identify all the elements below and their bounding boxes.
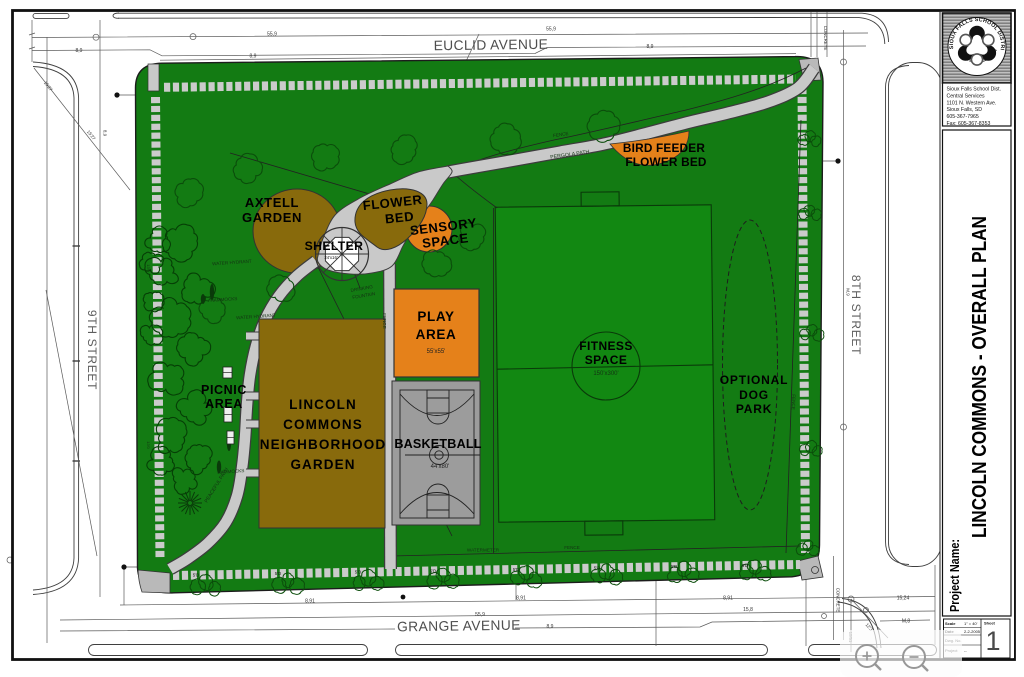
svg-text:Fax: 605-367-8353: Fax: 605-367-8353 — [947, 121, 991, 127]
svg-text:1" = 40': 1" = 40' — [964, 621, 978, 626]
svg-text:OPTIONAL: OPTIONAL — [720, 373, 788, 387]
svg-text:1: 1 — [985, 626, 1000, 656]
svg-text:5'D: 5'D — [430, 568, 437, 573]
svg-text:55,9: 55,9 — [475, 612, 485, 618]
svg-text:8TH STREET: 8TH STREET — [849, 275, 863, 355]
svg-text:8,9: 8,9 — [647, 44, 654, 50]
svg-text:13'0: 13'0 — [146, 441, 151, 449]
svg-text:FENCE: FENCE — [791, 394, 797, 410]
svg-text:44'x80': 44'x80' — [431, 464, 450, 470]
svg-text:5'D: 5'D — [671, 564, 678, 569]
svg-text:Sioux Falls School Dist.: Sioux Falls School Dist. — [947, 87, 1002, 93]
svg-text:5'D: 5'D — [193, 573, 200, 578]
svg-text:8,91: 8,91 — [723, 596, 733, 602]
svg-text:AREA: AREA — [205, 397, 243, 411]
svg-text:5'D: 5'D — [275, 571, 282, 576]
svg-text:M,8: M,8 — [902, 619, 911, 625]
svg-text:9TH STREET: 9TH STREET — [85, 310, 99, 390]
svg-text:55,9: 55,9 — [267, 32, 277, 38]
svg-text:FLOWER BED: FLOWER BED — [625, 155, 707, 169]
svg-text:CONCRETE: CONCRETE — [836, 588, 841, 613]
svg-text:BASKETBALL: BASKETBALL — [394, 437, 481, 451]
svg-text:GRANGE AVENUE: GRANGE AVENUE — [397, 618, 521, 635]
svg-text:LINCOLN: LINCOLN — [289, 397, 357, 412]
svg-text:15,8: 15,8 — [743, 607, 753, 613]
svg-text:NEIGHBORHOOD: NEIGHBORHOOD — [260, 437, 386, 452]
svg-text:8,91: 8,91 — [305, 599, 315, 605]
svg-text:150'x300': 150'x300' — [593, 371, 618, 377]
svg-text:8,9: 8,9 — [76, 48, 83, 54]
svg-text:PICNIC: PICNIC — [201, 383, 247, 397]
svg-text:5'D: 5'D — [513, 567, 520, 572]
svg-text:SHELTER: SHELTER — [305, 239, 364, 253]
svg-text:FENCE: FENCE — [382, 313, 387, 329]
svg-text:BIRD FEEDER: BIRD FEEDER — [623, 141, 705, 155]
svg-text:COMMONS: COMMONS — [283, 417, 363, 432]
svg-text:2-2-2005: 2-2-2005 — [964, 629, 981, 634]
svg-text:WATERMETER: WATERMETER — [467, 548, 500, 553]
svg-text:AREA: AREA — [416, 327, 457, 342]
svg-text:PARK: PARK — [736, 402, 772, 416]
svg-text:EUCLID AVENUE: EUCLID AVENUE — [434, 37, 549, 54]
svg-text:PLAY: PLAY — [417, 309, 454, 324]
svg-text:Project Name:: Project Name: — [947, 539, 962, 612]
svg-text:8,91: 8,91 — [516, 596, 526, 602]
svg-text:FITNESS: FITNESS — [579, 339, 632, 353]
svg-text:13'0: 13'0 — [146, 264, 151, 272]
svg-text:8,9: 8,9 — [547, 624, 554, 630]
svg-text:605-367-7965: 605-367-7965 — [947, 114, 979, 120]
svg-text:Scale: Scale — [945, 621, 956, 626]
svg-text:55'x55': 55'x55' — [427, 349, 446, 355]
svg-text:15,24: 15,24 — [897, 596, 910, 602]
svg-text:Sheet: Sheet — [984, 621, 996, 626]
svg-text:LINCOLN COMMONS - OVERALL PLAN: LINCOLN COMMONS - OVERALL PLAN — [968, 216, 991, 538]
svg-text:8,9: 8,9 — [250, 54, 257, 60]
svg-text:DOG: DOG — [739, 388, 769, 402]
svg-text:Central Services: Central Services — [947, 93, 985, 99]
svg-text:24'x16': 24'x16' — [324, 255, 338, 260]
svg-text:1101 N. Western Ave.: 1101 N. Western Ave. — [947, 100, 997, 106]
svg-text:55,9: 55,9 — [546, 27, 556, 33]
svg-text:8,9: 8,9 — [103, 130, 108, 137]
svg-text:5'D: 5'D — [355, 570, 362, 575]
svg-text:SPACE: SPACE — [585, 353, 627, 367]
svg-text:Sioux Falls, SD: Sioux Falls, SD — [947, 107, 983, 113]
svg-text:GARDEN: GARDEN — [242, 210, 302, 225]
svg-text:AXTELL: AXTELL — [245, 195, 299, 210]
svg-text:CONCRETE: CONCRETE — [823, 26, 828, 51]
svg-text:FENCE: FENCE — [564, 545, 580, 550]
svg-text:5'D: 5'D — [742, 563, 749, 568]
svg-text:GARDEN: GARDEN — [290, 457, 355, 472]
svg-text:5'D: 5'D — [594, 565, 601, 570]
